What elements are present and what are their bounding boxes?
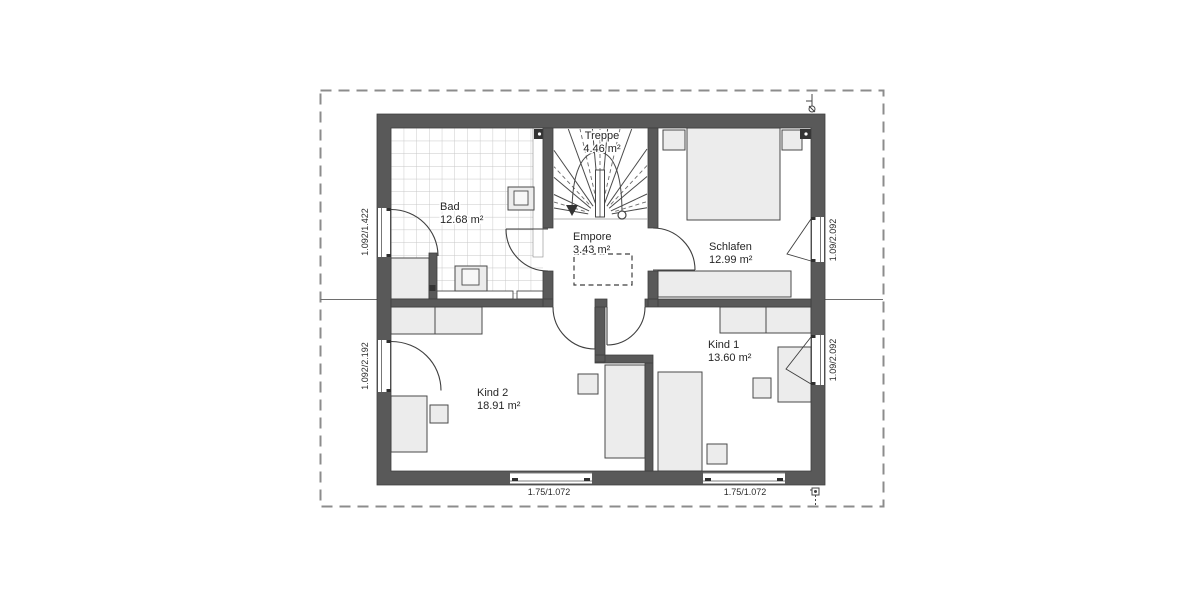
kind2-window-dim: 1.092/2.192	[360, 342, 370, 390]
floor-plan-drawing: Treppe 4.46 m² Bad 12.68 m² Empore 3.43 …	[0, 0, 1200, 600]
bad-washbasin-bowl	[514, 191, 528, 205]
bad-smoke-detector-dot	[538, 132, 541, 135]
kind1-label: Kind 1	[708, 339, 739, 351]
kind2-desk	[391, 396, 427, 452]
kind2-nightstand	[578, 374, 598, 394]
schlafen-window-dim: 1.09/2.092	[828, 219, 838, 262]
schlafen-area: 12.99 m²	[709, 254, 753, 266]
floor-plan-page: Treppe 4.46 m² Bad 12.68 m² Empore 3.43 …	[0, 0, 1200, 600]
kind2-wardrobe-b	[435, 307, 482, 334]
kind1-stool	[707, 444, 727, 464]
schlafen-bed	[687, 128, 780, 220]
schlafen-smoke-detector-dot	[804, 132, 807, 135]
bad-shower	[391, 258, 429, 299]
kind1-bottom-window-dim: 1.75/1.072	[724, 487, 767, 497]
treppe-area: 4.46 m²	[583, 143, 621, 155]
section-marker-top	[806, 94, 815, 112]
kind1-bed	[658, 372, 702, 471]
kind2-label: Kind 2	[477, 387, 508, 399]
kind1-chair	[753, 378, 771, 398]
schlafen-label: Schlafen	[709, 241, 752, 253]
schlafen-sideboard	[658, 271, 791, 297]
section-marker-bottom	[810, 488, 819, 506]
bad-area: 12.68 m²	[440, 214, 484, 226]
treppe-label: Treppe	[585, 130, 619, 142]
kind1-window-dim: 1.09/2.092	[828, 339, 838, 382]
bad-toilet-lid	[462, 269, 479, 285]
bad-counter-2	[517, 291, 543, 299]
kind2-chair	[430, 405, 448, 423]
kind2-bottom-window	[510, 473, 592, 484]
kind1-area: 13.60 m²	[708, 352, 752, 364]
kind2-area: 18.91 m²	[477, 400, 521, 412]
kind1-wardrobe-b	[766, 307, 811, 333]
kind1-wardrobe-a	[720, 307, 766, 333]
bad-shower-handle-icon	[430, 285, 436, 291]
kind2-bottom-window-dim: 1.75/1.072	[528, 487, 571, 497]
stair-start-circle-icon	[618, 211, 626, 219]
bad-label: Bad	[440, 201, 460, 213]
bad-partition-wall	[429, 253, 437, 299]
empore-label: Empore	[573, 231, 612, 243]
empore-area: 3.43 m²	[573, 244, 611, 256]
bad-window-dim: 1.092/1.422	[360, 208, 370, 256]
kind2-wardrobe-a	[391, 307, 435, 334]
schlafen-nightstand-left	[663, 130, 685, 150]
bad-counter	[437, 291, 513, 299]
schlafen-nightstand-right	[782, 130, 802, 150]
kind2-bed	[605, 365, 645, 458]
kind1-bottom-window	[703, 473, 785, 484]
